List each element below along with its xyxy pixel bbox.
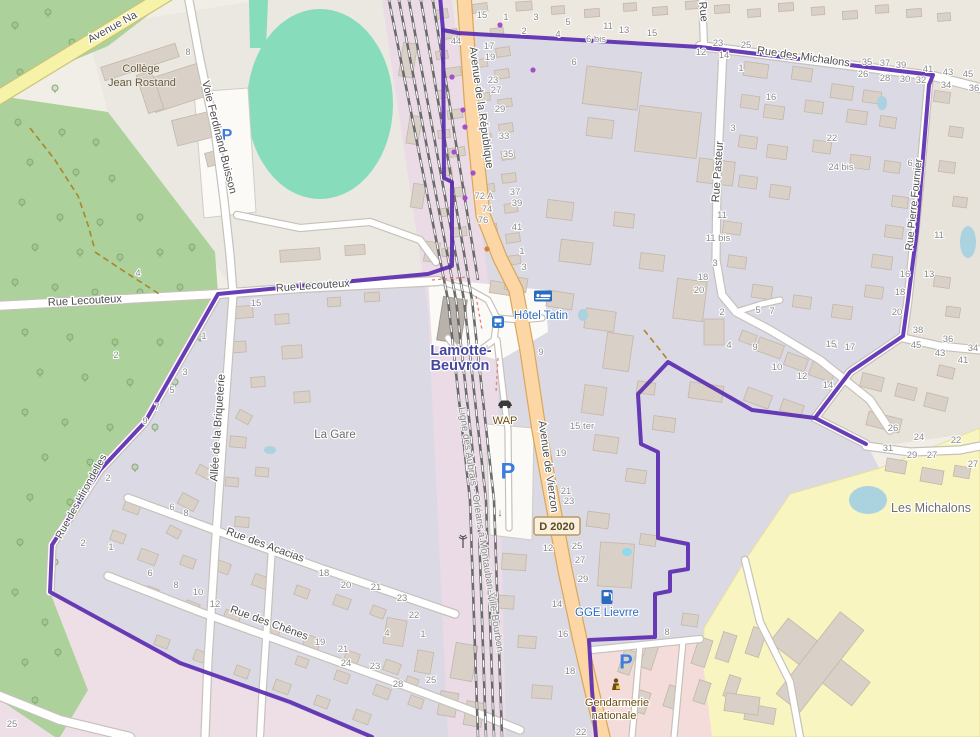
building [738,175,757,189]
building [778,2,794,11]
bus-icon [492,316,504,328]
building [294,391,311,403]
house-number: 28 [393,679,404,690]
building [559,239,593,265]
building [345,244,366,255]
house-number: 23 [564,496,575,507]
house-number: 12 [797,371,808,382]
house-number: 13 [924,269,935,280]
house-number: 4 [135,268,140,279]
tree-icon [17,539,23,545]
house-number: 43 [935,348,946,359]
house-number: 26 [888,423,899,434]
tree-icon [99,225,101,227]
building [879,115,896,128]
tree-icon [64,425,66,427]
building [871,254,893,270]
house-number: 33 [499,131,510,142]
fuel-icon [602,590,613,604]
building [763,104,785,120]
building [727,255,746,269]
building [532,685,553,699]
building [414,650,434,674]
house-number: 29 [578,574,589,585]
house-number: 44 [451,36,462,47]
dot-icon [470,170,475,175]
building [766,144,788,160]
house-number: 43 [943,67,954,78]
building [516,1,533,11]
tree-icon [177,284,183,290]
house-number: 2 [80,538,85,549]
building [623,3,637,12]
dot-icon [451,149,456,154]
tree-icon [109,175,115,181]
house-number: 19 [315,637,326,648]
house-number: 1 [503,12,508,23]
house-number: 18 [895,287,906,298]
house-number: 17 [845,342,856,353]
house-number: 19 [556,448,567,459]
house-number: 25 [426,675,437,686]
house-number: 5 [755,305,760,316]
tree-icon [24,335,26,337]
house-number: 38 [913,325,924,336]
house-number: 11 [717,210,727,221]
building [634,105,701,158]
house-number: 72 A [474,191,494,202]
building [846,109,868,125]
dot-icon [460,107,465,112]
building [842,10,858,19]
house-number: 39 [512,198,523,209]
tree-icon [22,409,28,415]
house-number: 6 bis [586,34,606,45]
house-number: 4 [726,340,731,351]
building [945,306,960,318]
house-number: 8 [664,627,669,638]
building [830,84,854,101]
building [327,297,341,307]
les-michalons-label: Les Michalons [891,501,971,515]
tree-icon [137,214,143,220]
house-number: 3 [730,123,735,134]
house-number: 22 [827,133,838,144]
building [884,225,903,239]
house-number: 35 [862,57,873,68]
house-number: 18 [565,666,576,677]
house-number: 9 [142,416,147,427]
tree-icon [52,85,58,91]
house-number: 14 [823,380,834,391]
house-number: 2 [105,473,110,484]
tree-icon [59,220,61,222]
parking-icon: P [619,652,632,674]
tree-icon [12,22,18,28]
gendarmerie-label-line2: nationale [592,710,637,722]
tree-icon [69,340,71,342]
house-number: 20 [694,285,705,296]
building [593,434,619,453]
tree-icon [159,345,161,347]
tree-icon [59,129,65,135]
house-number: 12 [543,543,554,554]
house-number: 21 [371,582,382,593]
house-number: 23 [370,661,381,672]
tree-icon [54,91,56,93]
building [582,66,641,110]
tree-icon [112,339,118,345]
street-label-rue-top: Rue [696,1,710,22]
house-number: 16 [766,92,777,103]
house-number: 14 [552,599,563,610]
house-number: 16 [900,269,911,280]
house-number: 12 [210,599,221,610]
dot-icon [462,124,467,129]
tree-icon [24,415,26,417]
building [225,477,239,487]
house-number: 8 [185,47,190,58]
tree-icon [62,419,68,425]
house-number: 29 [495,104,506,115]
building [652,416,676,433]
tree-icon [191,250,193,252]
house-number: 29 [907,450,918,461]
house-number: 20 [341,580,352,591]
college-label-line1: Collège [122,63,159,75]
route-shield: D 2020 [534,517,580,535]
building [280,248,321,263]
dot-icon [484,246,489,251]
house-number: 15 ter [570,421,594,432]
tree-icon [73,169,79,175]
building [364,292,380,302]
svg-text:P: P [501,458,516,483]
building [235,516,250,527]
tree-icon [32,244,38,250]
building [704,319,724,345]
tree-icon [27,159,33,165]
house-number: 74 [482,204,493,215]
house-number: 45 [963,69,974,80]
tree-icon [39,375,41,377]
house-number: 39 [896,60,907,71]
house-number: 1 [201,331,206,342]
tree-icon [132,464,138,470]
tree-icon [152,424,158,430]
house-number: 9 [538,347,543,358]
building [255,467,269,477]
building [639,253,665,272]
house-number: 15 [647,28,658,39]
tree-icon [95,145,97,147]
house-number: 15 [477,10,488,21]
gendarmerie-label-line1: Gendarmerie [585,697,649,709]
building [586,117,614,138]
pond [622,548,632,556]
house-number: 1 [738,63,743,74]
tree-icon [159,255,161,257]
building [937,13,951,22]
tree-icon [67,334,73,340]
house-number: 7 [769,306,774,317]
tree-icon [44,625,46,627]
tree-icon [97,219,103,225]
house-number: 27 [575,555,586,566]
area-pitch-neck [249,0,268,48]
house-number: 3 [712,258,717,269]
house-number: 41 [958,355,969,366]
building [891,195,908,208]
tree-icon [77,249,83,255]
building [681,613,699,627]
house-number: 37 [510,187,521,198]
building [230,436,247,448]
tree-icon [12,589,18,595]
tree-icon [22,329,28,335]
house-number: 15 [826,339,837,350]
tree-icon [14,595,16,597]
building [251,377,266,388]
house-number: 5 [565,17,570,28]
tree-icon [42,454,48,460]
building [804,100,823,114]
house-number: 18 [698,272,709,283]
tree-icon [15,119,21,125]
house-number: 12 [696,47,707,58]
tree-icon [32,697,38,703]
tree-icon [107,424,113,430]
house-number: 45 [911,340,922,351]
building [546,199,574,220]
house-number: 4 [384,628,389,639]
tree-icon [134,470,136,472]
building [952,196,967,208]
house-number: 1 [420,629,425,640]
svg-text:↓: ↓ [497,507,503,519]
pond [849,486,887,514]
building [586,511,610,529]
house-number: 20 [892,307,903,318]
tree-icon [119,260,121,262]
tree-icon [93,139,99,145]
dot-icon [530,67,535,72]
parking-icon: P [501,458,516,483]
pond [578,309,588,321]
tree-icon [57,214,63,220]
house-number: 7 [154,402,159,413]
pond [264,446,276,454]
house-number: 3 [182,367,187,378]
building [581,385,607,416]
map-canvas[interactable]: PPP↓↓ 15135111315246 bis6441719232729333… [0,0,980,737]
tree-icon [154,430,156,432]
house-number: 19 [485,52,496,63]
tree-icon [24,665,26,667]
house-number: 8 [173,580,178,591]
building [751,284,773,300]
house-number: 15 [251,298,262,309]
house-number: 23 [397,593,408,604]
house-number: 17 [484,41,495,52]
dot-icon [497,22,502,27]
tree-icon [45,9,51,15]
house-number: 3 [533,12,538,23]
map-stage: PPP↓↓ 15135111315246 bis6441719232729333… [0,0,980,737]
tree-icon [17,125,19,127]
house-number: 2 [113,350,118,361]
building [791,66,813,82]
building [714,4,730,13]
house-number: 25 [741,40,752,51]
tree-icon [19,199,25,205]
tree-icon [34,250,36,252]
house-number: 37 [880,58,891,69]
dot-icon [449,74,454,79]
house-number: 26 [858,69,869,80]
tree-icon [61,135,63,137]
house-number: 36 [969,83,980,94]
college-label-line2: Jean Rostand [108,77,176,89]
tree-icon [109,430,111,432]
pond [877,96,887,110]
house-number: 6 [147,568,152,579]
house-number: 18 [319,568,330,579]
building [613,212,635,228]
dot-icon [462,195,467,200]
building [282,345,303,359]
gge-lievrre-label: GGE Lievrre [575,607,639,619]
tree-icon [44,460,46,462]
house-number: 9 [752,342,757,353]
house-number: 22 [951,435,962,446]
svg-text:P: P [619,652,632,674]
tree-icon [21,205,23,207]
house-number: 25 [572,541,583,552]
building [584,308,616,332]
building [938,160,955,173]
house-number: 36 [943,334,954,345]
tree-icon [14,285,16,287]
tree-icon [54,290,56,292]
tree-icon [27,494,33,500]
tree-icon [129,385,131,387]
house-number: 2 [521,26,526,37]
la-gare-label: La Gare [314,429,356,441]
house-number: 35 [503,149,514,160]
house-number: 16 [558,629,569,640]
building [505,233,520,244]
tree-icon [29,500,31,502]
building [501,553,526,571]
house-number: 8 [183,508,188,519]
house-number: 4 [555,29,560,40]
building [875,5,889,14]
building [933,275,950,288]
house-number: 27 [927,450,938,461]
house-number: 21 [338,644,349,655]
tree-icon [29,165,31,167]
house-number: 11 [603,21,613,32]
house-number: 32 [916,75,927,86]
house-number: 3 [521,262,526,273]
house-number: 13 [619,25,630,36]
building [769,184,791,200]
tree-icon [12,279,18,285]
tree-icon [139,220,141,222]
area-pitch-oval [247,9,393,199]
building [584,8,600,17]
house-number: 10 [193,587,204,598]
tree-icon [114,345,116,347]
house-number: 5 [169,385,174,396]
tree-icon [19,545,21,547]
tree-icon [189,244,195,250]
building [811,7,825,16]
house-number: 41 [512,222,523,233]
tree-icon [14,28,16,30]
house-number: 14 [719,50,730,61]
building [740,94,760,109]
building [933,90,950,103]
tree-icon [37,369,43,375]
tree-icon [82,374,88,380]
hotel-tatin-label: Hôtel Tatin [514,310,568,322]
town-label-line1: Lamotte- [430,343,491,359]
building [738,135,757,149]
house-number: 27 [968,459,979,470]
house-number: 11 [934,230,944,241]
route-shield-text: D 2020 [539,521,574,533]
building [625,468,647,484]
tree-icon [157,249,163,255]
house-number: 1 [108,542,113,553]
house-number: 24 [914,432,925,443]
tree-icon [79,255,81,257]
arrow-icon: ↓ [497,507,503,519]
building [652,6,668,15]
building [864,285,883,299]
pond [960,226,976,258]
building [747,9,761,18]
building [792,295,811,309]
building [831,304,853,320]
house-number: 28 [880,73,891,84]
building [518,635,537,648]
house-number: 10 [772,362,783,373]
building [906,8,922,17]
building [495,47,510,58]
house-number: 27 [491,85,502,96]
tree-icon [127,379,133,385]
house-number: 6 [169,502,174,513]
building [275,314,290,325]
building [883,160,900,173]
building [501,173,516,184]
tree-icon [47,15,49,17]
tree-icon [157,339,163,345]
house-number: 76 [478,215,489,226]
tree-icon [52,284,58,290]
house-number: 41 [923,64,934,75]
house-number: 1 [519,246,524,257]
tree-icon [42,619,48,625]
building [948,126,963,138]
house-number: 24 [341,658,352,669]
building [639,533,656,546]
tree-icon [117,254,123,260]
house-number: 25 [7,719,18,730]
